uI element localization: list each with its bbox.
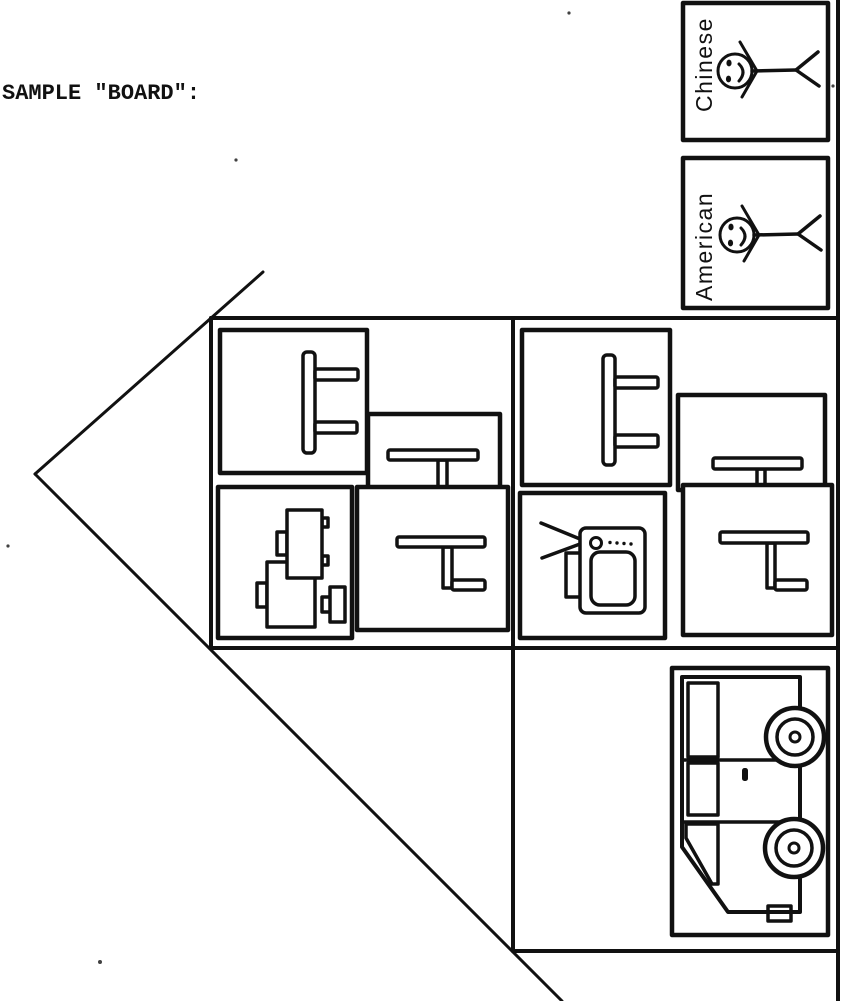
card-border [678,395,825,490]
cups-card [218,487,352,638]
bus-wheel [766,708,824,766]
bus-wheel [765,819,823,877]
page-title: SAMPLE "BOARD": [2,81,200,106]
side-table-card [220,330,367,473]
player-card-american: American [683,158,828,308]
table-foot [452,580,485,590]
tv-screen [591,552,635,605]
tv-button-dot [615,541,618,544]
board-figure: SAMPLE "BOARD": Chinese American [0,0,841,1001]
scan-speck [234,158,237,161]
bus-card [672,668,828,935]
table-top [603,355,615,465]
right-room [520,330,832,638]
table-leg [315,369,358,380]
small-cup [330,587,345,622]
scan-speck [831,84,834,87]
left-room [218,330,508,638]
wheel-outer [765,819,823,877]
side-table-card [522,330,670,485]
bus-door-handle [742,768,748,781]
table-top [713,458,802,469]
table-with-foot-card [683,485,832,635]
scan-speck [567,11,570,14]
table-with-foot-card [357,487,508,630]
card-border [357,487,508,630]
card-border [522,330,670,485]
cup [287,510,322,578]
scanned-page: SAMPLE "BOARD": Chinese American [0,0,841,1001]
scan-speck [6,544,9,547]
television-card [520,493,665,638]
wheel-outer [766,708,824,766]
table-leg [615,435,658,447]
tv-button-dot [622,542,625,545]
scan-speck [98,960,102,964]
table-top [303,352,315,453]
table-foot [775,580,807,590]
bus-window [688,683,718,757]
card-border [220,330,367,473]
pedestal-table-card [678,395,825,491]
player-card-chinese: Chinese [683,3,828,140]
table-leg [315,422,357,433]
player-label-chinese: Chinese [691,17,717,112]
table-leg [615,377,658,388]
table-top [388,450,478,460]
player-label-american: American [691,192,717,301]
card-border [683,485,832,635]
table-top [720,532,808,543]
tv-button-dot [608,541,611,544]
bus-window [688,763,718,815]
tv-button-dot [629,542,632,545]
table-top [397,537,485,547]
